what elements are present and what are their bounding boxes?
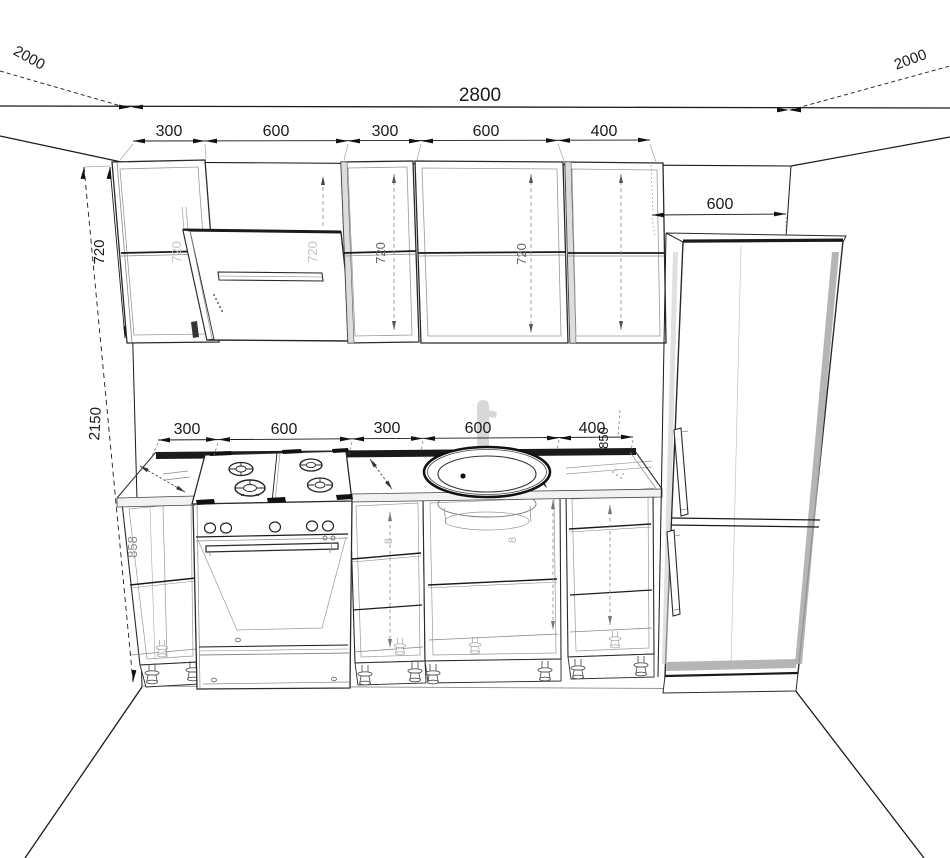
- watermark-8-a: 8: [383, 538, 395, 544]
- dimension-depth-left: 2000: [0, 43, 128, 108]
- upper-seg-5-label: 400: [591, 123, 618, 140]
- base-height-label: 858: [125, 536, 140, 558]
- cabinet2-height-label: 720: [373, 242, 388, 264]
- base-cabinet-sink: 8: [423, 491, 561, 684]
- sink-drain-icon: [460, 473, 465, 478]
- wall-cabinet-2: 720: [341, 161, 419, 343]
- fridge: [658, 233, 846, 693]
- upper-height-label: 720: [91, 239, 108, 264]
- upper-seg-3-label: 300: [372, 123, 399, 140]
- watermark-8-b: 8: [507, 537, 519, 543]
- upper-seg-4-label: 600: [473, 123, 500, 140]
- dimension-fridge-width: 600: [651, 165, 786, 236]
- wall-cabinet-4: [565, 162, 666, 343]
- total-height-label: 2150: [86, 407, 105, 441]
- dimension-depth-right: 2000: [790, 46, 950, 110]
- stove: [193, 500, 352, 689]
- dimension-upper-row: 300 600 300 600 400: [120, 123, 656, 162]
- drawing-canvas: 2000 2000 2800 300 600 300 600 400 720 2…: [0, 0, 950, 858]
- base-cabinet-300: 8: [350, 497, 426, 685]
- sink-area: [424, 400, 550, 497]
- counter-speckles: [612, 469, 624, 479]
- depth-right-label: 2000: [892, 46, 929, 73]
- wall-cabinet-3: 720: [415, 161, 568, 343]
- base-cabinet-left: 858: [122, 497, 200, 687]
- depth-left-label: 2000: [10, 43, 47, 74]
- hood-height-faint-label-left: 720: [169, 241, 184, 263]
- fridge-width-label: 600: [707, 196, 734, 213]
- base-seg-4-label: 600: [465, 420, 492, 437]
- upper-seg-2-label: 600: [263, 123, 290, 140]
- base-seg-2-label: 600: [271, 421, 298, 438]
- hood-height-faint-label-right: 720: [305, 241, 320, 263]
- room-width-label: 2800: [459, 85, 501, 106]
- kitchen-elevation-drawing: 2000 2000 2800 300 600 300 600 400 720 2…: [0, 0, 950, 858]
- sink-rim: [424, 447, 550, 497]
- worktop-height-label: 850: [596, 427, 611, 449]
- upper-seg-1-label: 300: [156, 123, 183, 140]
- gas-hob: [192, 448, 353, 505]
- base-seg-1-label: 300: [174, 421, 201, 438]
- dimension-room-width: 2800: [119, 85, 801, 112]
- base-seg-3-label: 300: [374, 420, 401, 437]
- cabinet3-height-label: 720: [514, 243, 529, 265]
